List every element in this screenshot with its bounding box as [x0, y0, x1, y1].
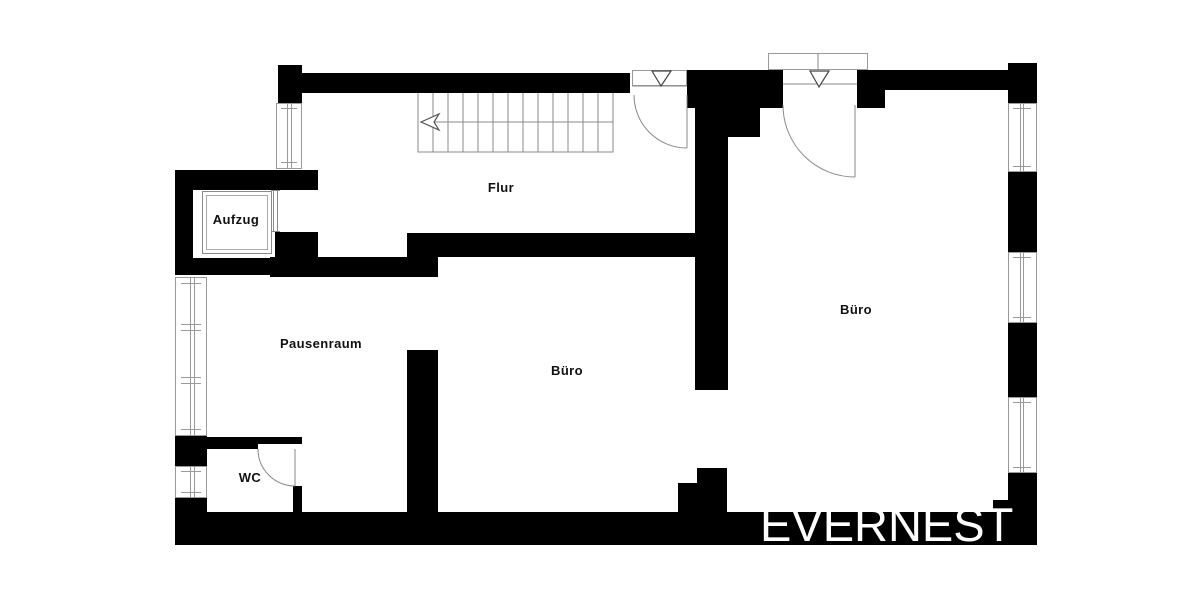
room-label-aufzug: Aufzug	[213, 212, 259, 227]
door-swing-arc	[258, 449, 295, 486]
room-label-pausenraum: Pausenraum	[280, 336, 362, 351]
entrance-arrow-icon	[810, 71, 829, 87]
wc-door	[258, 449, 295, 486]
window-left-band	[176, 278, 207, 436]
window-right-1	[1009, 104, 1037, 172]
room-label-buero-mitte: Büro	[551, 363, 583, 378]
elevator-door	[271, 190, 280, 232]
window-right-2	[1009, 253, 1037, 323]
room-label-flur: Flur	[488, 180, 514, 195]
entrance-door-buero	[769, 54, 868, 178]
floorplan-canvas: Flur Aufzug Pausenraum Büro Büro WC EVER…	[0, 0, 1200, 600]
floorplan-drawing	[0, 0, 1200, 600]
door-swing-arc	[783, 105, 855, 177]
window-right-3	[1009, 398, 1037, 473]
room-label-wc: WC	[239, 470, 261, 485]
walls	[175, 63, 1037, 545]
door-swing-arc	[634, 95, 687, 148]
window-lower-left	[176, 467, 207, 498]
staircase	[418, 93, 613, 152]
window-upper-left	[277, 104, 302, 169]
entrance-door-flur	[632, 71, 687, 149]
room-label-buero-rechts: Büro	[840, 302, 872, 317]
evernest-watermark: EVERNEST	[760, 504, 1013, 546]
